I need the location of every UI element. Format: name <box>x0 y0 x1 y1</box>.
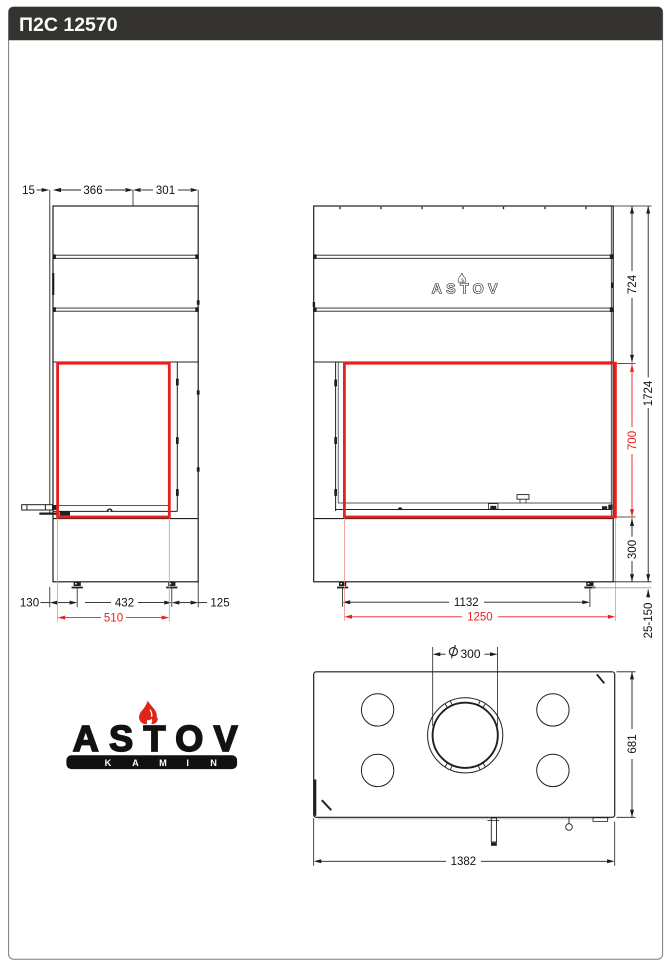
svg-text:1132: 1132 <box>454 597 479 609</box>
svg-text:M: M <box>159 758 167 768</box>
svg-text:681: 681 <box>627 734 639 753</box>
svg-text:A: A <box>132 758 139 768</box>
svg-text:510: 510 <box>104 612 123 624</box>
svg-text:ASTOV: ASTOV <box>431 282 501 298</box>
svg-text:15: 15 <box>22 185 35 197</box>
svg-text:1382: 1382 <box>451 856 477 868</box>
svg-text:1250: 1250 <box>467 612 493 624</box>
svg-text:1724: 1724 <box>643 380 655 406</box>
svg-text:П2С 12570: П2С 12570 <box>19 14 118 36</box>
svg-text:N: N <box>210 758 217 768</box>
svg-text:ASTOV: ASTOV <box>73 718 248 759</box>
svg-text:366: 366 <box>83 185 102 197</box>
svg-text:25-150: 25-150 <box>643 603 655 639</box>
svg-text:I: I <box>186 758 189 768</box>
svg-text:K: K <box>105 758 112 768</box>
svg-text:700: 700 <box>627 431 639 450</box>
svg-text:130: 130 <box>20 597 39 609</box>
svg-text:432: 432 <box>115 597 134 609</box>
svg-text:300: 300 <box>460 647 480 661</box>
svg-text:300: 300 <box>627 540 639 559</box>
svg-text:724: 724 <box>627 274 639 294</box>
svg-text:301: 301 <box>156 185 175 197</box>
svg-text:125: 125 <box>210 597 229 609</box>
